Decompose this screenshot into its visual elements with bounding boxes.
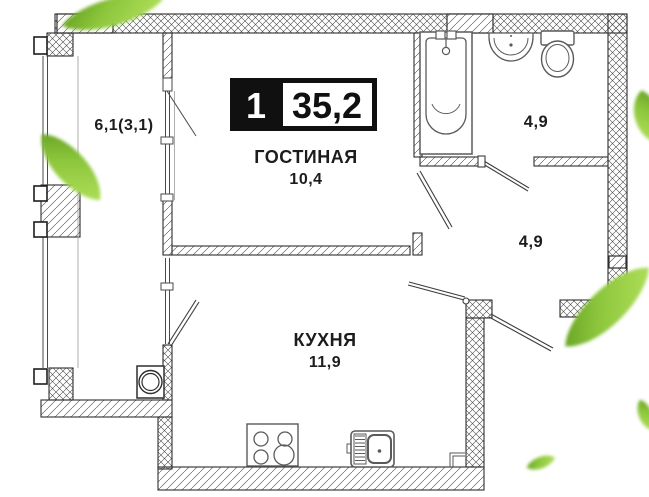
wall-balcony-living-1 (163, 33, 172, 78)
badge-total-area: 35,2 (292, 85, 362, 126)
entrance-door-leaf (489, 314, 553, 351)
balcony-door-leaf (168, 300, 199, 346)
floor-plan-drawing: 1 35,2 ГОСТИНАЯ 10,4 КУХНЯ 11,9 6,1(3,1)… (0, 0, 649, 497)
kitchen-sink-icon (347, 431, 394, 467)
wall-balcony-bottom (41, 400, 172, 417)
wall-kitchen-bottom (158, 467, 484, 490)
wall-right (608, 14, 627, 295)
wall-bathroom-bottom-right (534, 157, 608, 166)
leaf-decoration-right-top (630, 88, 649, 143)
window-sash (163, 78, 172, 91)
washing-machine-icon (137, 366, 164, 398)
leaf-decoration-bottom-small (525, 453, 557, 473)
hallway-area: 4,9 (519, 233, 543, 251)
badge-rooms-count: 1 (246, 85, 266, 126)
leaf-decoration-right-bottom-small (634, 398, 649, 433)
living-room-area: 10,4 (289, 171, 322, 188)
wall-step (158, 417, 172, 469)
window-frame-tab (34, 37, 47, 54)
wall-balcony-top-pier (47, 33, 73, 56)
bathroom-door-leaf (478, 156, 529, 191)
floor-plan: 1 35,2 ГОСТИНАЯ 10,4 КУХНЯ 11,9 6,1(3,1)… (0, 0, 649, 497)
kitchen-door-leaf (408, 282, 469, 304)
window-frame-tab (34, 369, 47, 384)
window-frame-tab (34, 222, 47, 237)
living-room-label: ГОСТИНАЯ (254, 147, 357, 167)
bathroom-area: 4,9 (524, 113, 548, 131)
wall-top (55, 14, 627, 33)
duct-detail (450, 453, 465, 467)
wall-balcony-living-2 (163, 200, 172, 255)
window-frame-tab (34, 186, 47, 201)
wall-living-kitchen (172, 246, 410, 255)
bathtub-icon (420, 31, 472, 154)
kitchen-area: 11,9 (309, 354, 341, 371)
bathroom-sink-icon (489, 33, 533, 61)
stove-icon (247, 424, 298, 466)
area-badge: 1 35,2 (230, 78, 377, 131)
wall-bathroom-bottom-left (420, 157, 479, 166)
wall-balcony-bottom-pier (49, 368, 73, 400)
kitchen-label: КУХНЯ (293, 330, 356, 350)
living-room-door-leaf (417, 171, 452, 229)
window-sash-swing (167, 91, 196, 136)
wall-living-hall-stub (413, 233, 422, 255)
balcony-area: 6,1(3,1) (94, 117, 153, 134)
toilet-icon (541, 31, 574, 77)
wall-kitchen-right (466, 300, 492, 318)
